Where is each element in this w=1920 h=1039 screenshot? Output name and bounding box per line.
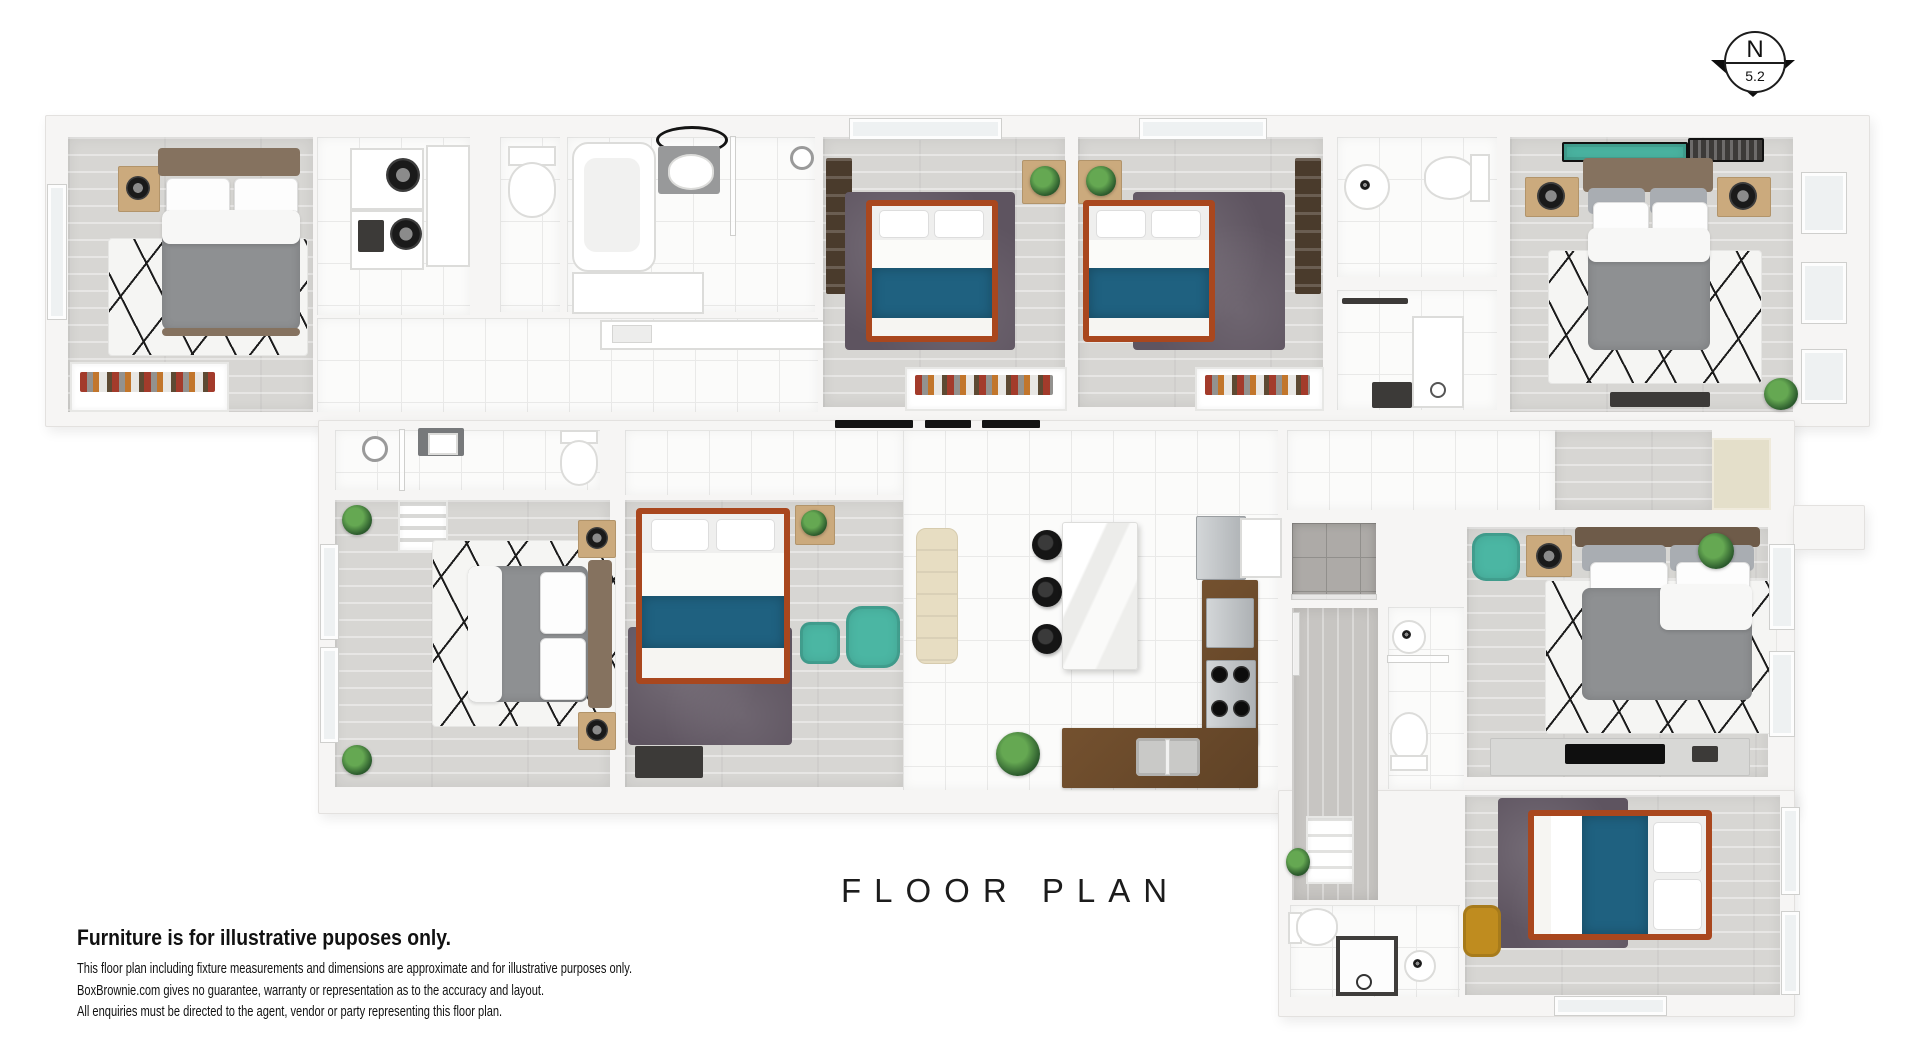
faucet-icon [1402,630,1411,639]
faucet-icon [1413,959,1422,968]
plant-icon [1764,378,1798,410]
lamp-icon [1536,543,1562,569]
duvet-fold [1660,584,1752,630]
shower-head-icon [790,146,814,170]
right-wall-bump [1793,505,1865,550]
bed-footboard [162,328,300,336]
sink-divider [1166,740,1169,774]
bedroom-8-window [1770,545,1794,629]
plant-icon [342,745,372,775]
bed-headboard [1583,158,1713,192]
drain-icon [1430,382,1446,398]
dryer-door [390,218,422,250]
hanging-clothes [1205,375,1310,395]
walkin-shower-floor [1292,523,1376,600]
bedroom-7-bed [1528,810,1712,940]
sink [668,154,714,190]
toilet [1296,908,1338,946]
hanging-clothes [915,375,1053,395]
disclaimer-heading: Furniture is for illustrative puposes on… [77,925,737,951]
bedroom-5-window [321,545,338,639]
faucet-icon [1360,180,1370,190]
wall-art [925,420,971,428]
compass-midline [1724,62,1786,64]
master-window [1802,350,1846,403]
speaker [1692,746,1718,762]
lamp-icon [1537,182,1565,210]
bedroom-5-window [321,648,338,742]
bar-stool [1032,577,1062,607]
bar-stool [1032,624,1062,654]
entry-strip-floor [625,430,903,495]
bath-mat [1372,382,1412,408]
plant-icon [1698,533,1734,569]
pillow [540,572,586,634]
bedroom-2-bed [866,200,998,342]
plant-icon [996,732,1040,776]
drain-icon [1356,974,1372,990]
toilet-tank [1470,154,1490,202]
bathtub-basin [584,158,640,252]
disclaimer-line: This floor plan including fixture measur… [77,958,632,980]
pillow [540,638,586,700]
hanging-clothes [80,372,215,392]
toilet [1424,156,1476,200]
plant-icon [1086,166,1116,196]
burner-icon [1233,700,1250,717]
washer-door [386,158,420,192]
burner-icon [1211,666,1228,683]
shower-glass [1292,595,1376,599]
tv [1565,744,1665,764]
wall-art [835,420,913,428]
toilet-tank [1390,755,1428,771]
lamp-icon [126,176,150,200]
wardrobe [1295,158,1321,294]
laundry-counter [426,145,470,267]
entry-wood-floor [1555,430,1712,510]
compass-dial: N 5.2 [1724,31,1786,93]
lamp-icon [1729,182,1757,210]
bed-headboard [158,148,300,176]
duvet-fold [1588,228,1710,262]
toilet [560,440,598,486]
plant-icon [801,510,827,536]
sofa [916,528,958,664]
bedroom-8-window [1770,652,1794,736]
disclaimer-line: BoxBrownie.com gives no guarantee, warra… [77,980,632,1002]
lamp-icon [586,527,608,549]
shower-glass [400,430,404,490]
wall-art [982,420,1040,428]
disclaimer: Furniture is for illustrative puposes on… [77,925,827,1023]
bedroom-2-skylight [850,119,1001,139]
pantry-niche [1240,518,1282,578]
range-hood [1196,516,1246,580]
duvet-fold [468,566,502,702]
bedroom-7-window [1782,808,1799,894]
teal-armchair [1472,533,1520,581]
master-window [1802,173,1846,233]
compass-north-label: N [1726,36,1784,64]
mustard-armchair [1463,905,1501,957]
bedroom-1-window [48,185,66,319]
linen-dresser [1306,816,1354,884]
toilet [508,162,556,218]
towel-rail [1342,298,1408,304]
bedroom-3-skylight [1140,119,1266,139]
dryer-panel [358,220,384,252]
sink [428,433,458,455]
plant-icon [1030,166,1060,196]
bedroom-3-bed [1083,200,1215,342]
bar-stool [1032,530,1062,560]
compass-bearing: 5.2 [1726,68,1784,84]
page-title: FLOOR PLAN [841,872,1180,910]
open-door [1293,613,1299,675]
duvet-fold [162,210,300,244]
hall-sink [612,325,652,343]
living-strip-floor [1287,430,1555,510]
bathroom-cabinet [572,272,704,314]
master-window [1802,263,1846,323]
plant-icon [1286,848,1310,876]
shower-head-icon [362,436,388,462]
bed-headboard [588,560,612,708]
door-mat [1712,438,1771,510]
teal-armchair [846,606,900,668]
burner-icon [1233,666,1250,683]
floor-plan-canvas: N 5.2 FLOOR PLAN Furniture is for illust… [0,0,1920,1039]
shower-glass [731,137,735,235]
plant-icon [342,505,372,535]
dresser [635,746,703,778]
bedroom-7-window [1782,912,1799,994]
teal-ottoman [800,622,840,664]
bedroom-7-window [1555,997,1666,1015]
burner-icon [1211,700,1228,717]
fridge [1206,598,1254,648]
disclaimer-line: All enquiries must be directed to the ag… [77,1001,632,1023]
kitchen-island [1062,522,1138,670]
half-wall [1388,656,1448,662]
lamp-icon [586,719,608,741]
dresser [1610,392,1710,407]
bedroom-6-bed [636,508,790,684]
